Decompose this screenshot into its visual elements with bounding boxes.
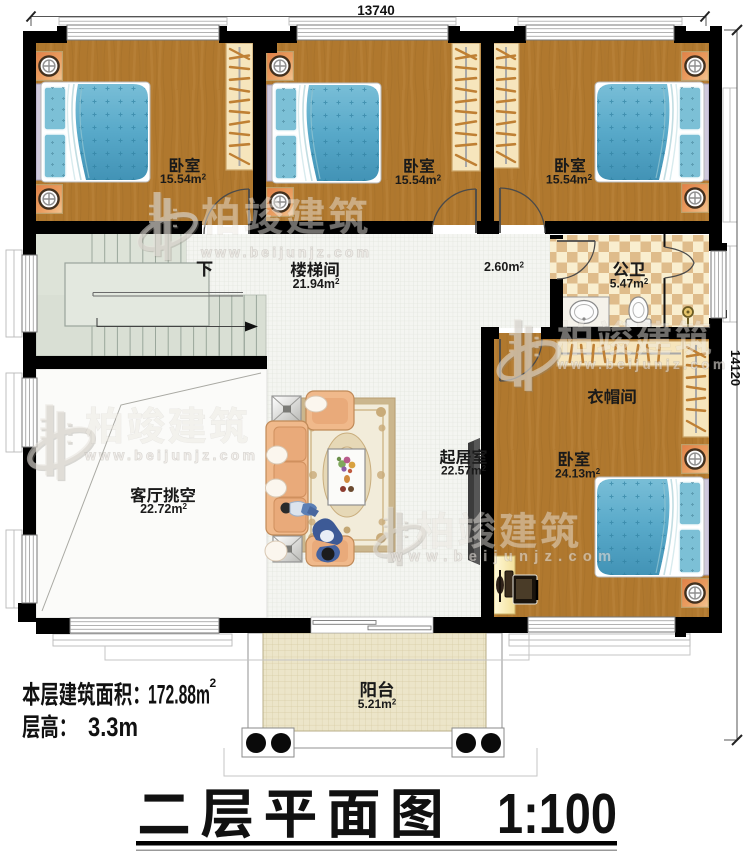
svg-text:5.21m2: 5.21m2 bbox=[358, 697, 397, 711]
svg-text:14120: 14120 bbox=[728, 350, 743, 386]
svg-text:1:100: 1:100 bbox=[497, 782, 617, 846]
svg-text:22.57m2: 22.57m2 bbox=[441, 463, 487, 477]
svg-text:172.88m: 172.88m bbox=[148, 680, 210, 710]
svg-text:2.60m2: 2.60m2 bbox=[484, 260, 524, 274]
svg-text:13740: 13740 bbox=[357, 3, 395, 18]
svg-text:15.54m2: 15.54m2 bbox=[546, 173, 593, 187]
svg-text:15.54m2: 15.54m2 bbox=[395, 173, 442, 187]
svg-text:2: 2 bbox=[210, 676, 217, 690]
svg-text:15.54m2: 15.54m2 bbox=[160, 172, 207, 186]
svg-text:21.94m2: 21.94m2 bbox=[293, 277, 340, 291]
svg-text:3.3m: 3.3m bbox=[88, 712, 138, 742]
svg-text:5.47m2: 5.47m2 bbox=[610, 276, 649, 290]
svg-text:22.72m2: 22.72m2 bbox=[140, 502, 187, 516]
svg-text:24.13m2: 24.13m2 bbox=[555, 466, 601, 480]
